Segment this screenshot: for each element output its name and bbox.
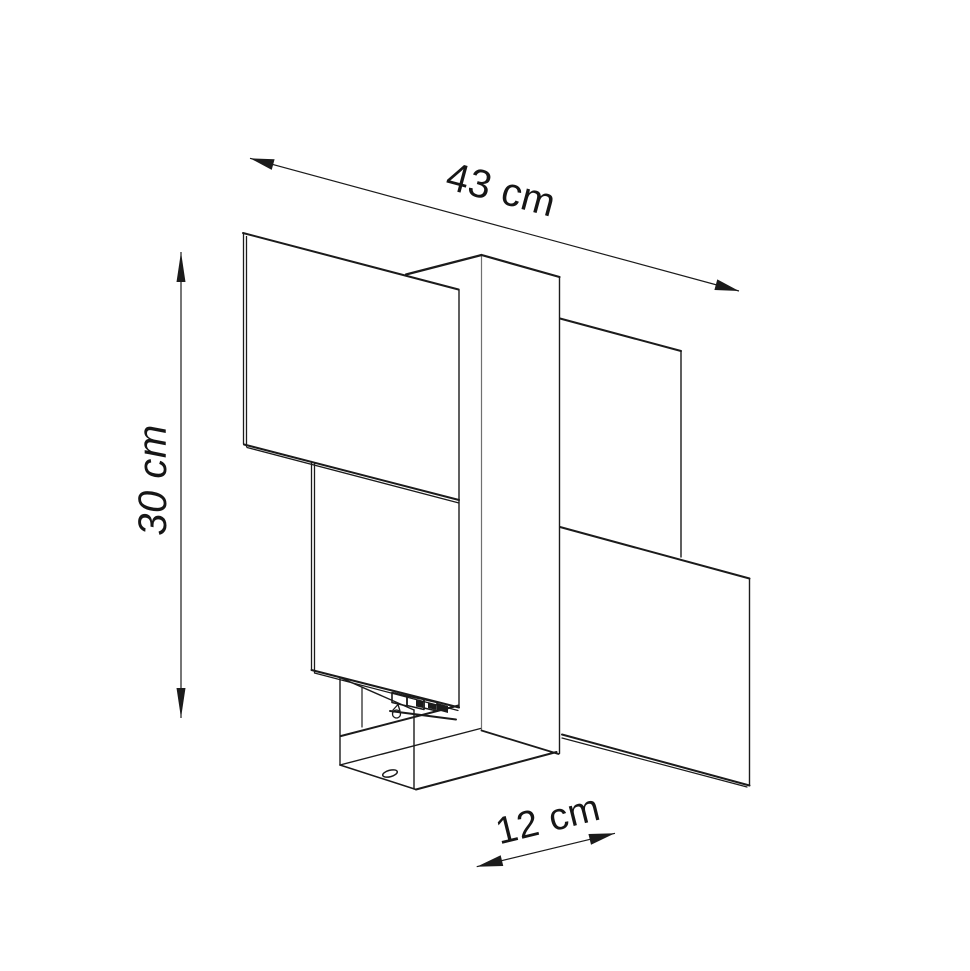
edge-upper-left-panel-top [243, 233, 459, 290]
bottom-screw-hole [382, 768, 398, 778]
dimension-label-height: 30 cm [133, 424, 173, 535]
edge-mount-box-bottom-left-edge [340, 765, 416, 790]
arrowhead-height [177, 252, 186, 282]
arrowhead-width [250, 158, 275, 170]
edge-upper-right-panel-top [560, 319, 681, 352]
edge-upper-left-panel-bottom-inner [247, 448, 459, 504]
edge-column-top-left-edge [406, 255, 482, 275]
edge-column-top-right-edge [482, 255, 560, 277]
edge-upper-left-panel-bottom-outer [244, 445, 459, 501]
edge-lower-right-panel-bottom-inner [562, 738, 747, 787]
arrowhead-width [714, 279, 739, 291]
arrowhead-height [177, 688, 186, 718]
edge-column-bottom-edge [482, 731, 559, 755]
edge-lower-right-panel-bottom-outer [562, 735, 750, 786]
edge-lower-right-panel-top [560, 527, 750, 579]
lamp-dimension-diagram: 43 cm 30 cm 12 cm [0, 0, 970, 971]
edge-keyhole-tail-left [393, 705, 398, 711]
edge-mount-box-bottom-front-edge [416, 752, 557, 790]
arrowhead-depth [477, 855, 504, 866]
arrowhead-depth [588, 833, 615, 844]
edge-mount-box-bottom-back-edge [340, 729, 481, 766]
